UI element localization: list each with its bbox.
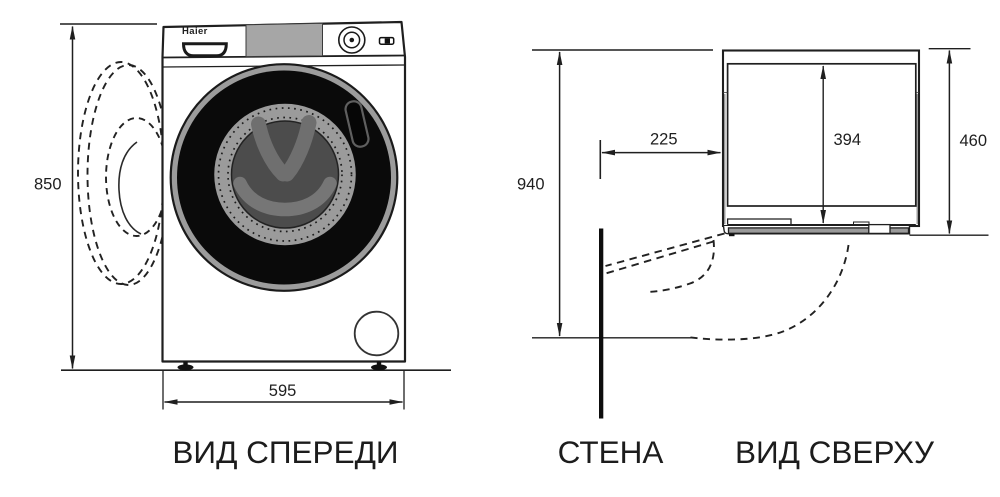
svg-text:460: 460 [960,132,988,150]
svg-text:940: 940 [517,176,545,194]
svg-text:394: 394 [834,131,862,149]
svg-text:225: 225 [650,131,678,149]
svg-text:ВИД СВЕРХУ: ВИД СВЕРХУ [735,434,935,470]
svg-text:850: 850 [34,176,62,194]
svg-text:ВИД СПЕРЕДИ: ВИД СПЕРЕДИ [172,434,398,470]
svg-text:595: 595 [269,382,297,400]
svg-text:Haier: Haier [182,26,208,37]
svg-text:СТЕНА: СТЕНА [558,434,664,470]
